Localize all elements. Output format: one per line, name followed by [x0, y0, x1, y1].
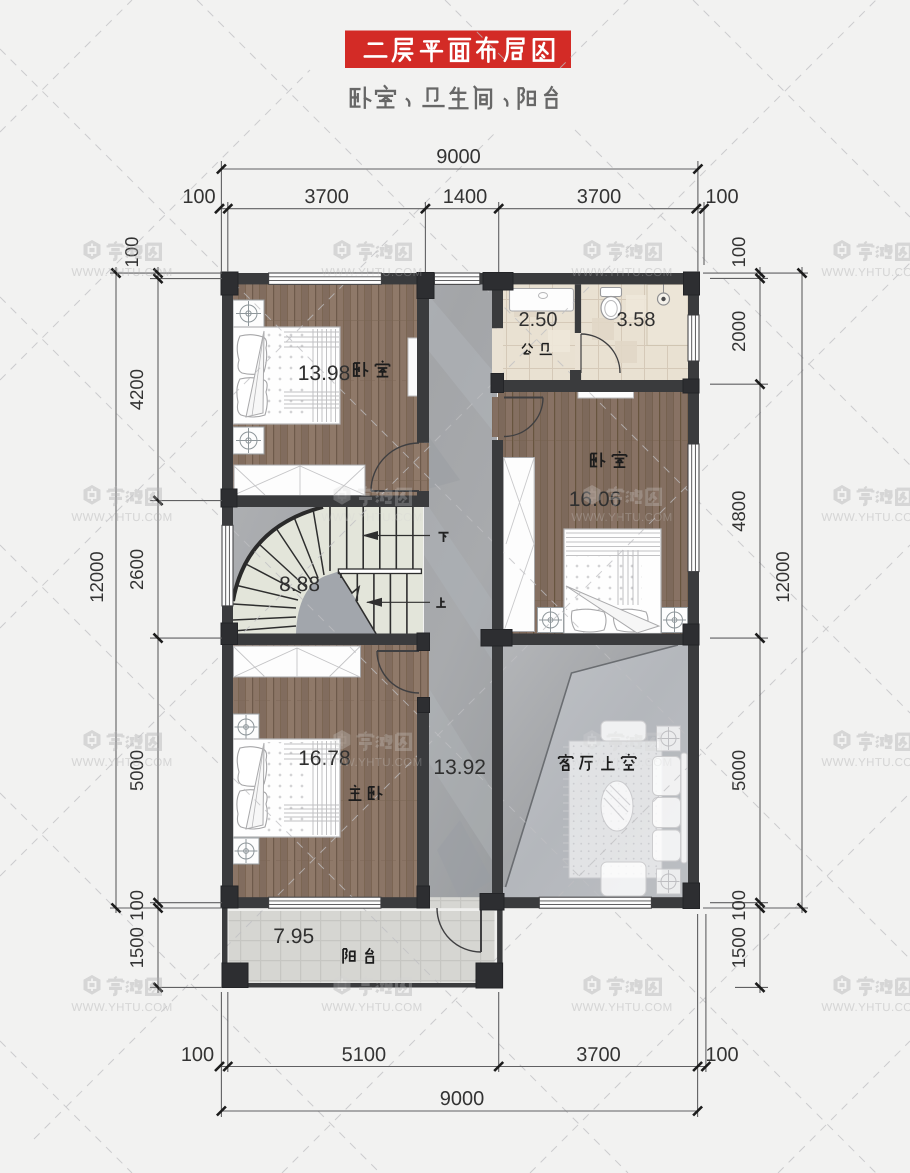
svg-text:100: 100 — [705, 1044, 738, 1066]
svg-text:100: 100 — [728, 890, 749, 921]
svg-text:100: 100 — [705, 186, 738, 208]
svg-text:12000: 12000 — [86, 551, 107, 602]
svg-text:9000: 9000 — [436, 146, 481, 168]
svg-text:2000: 2000 — [728, 311, 749, 352]
svg-text:100: 100 — [126, 890, 147, 921]
svg-text:100: 100 — [182, 186, 215, 208]
svg-text:2.50: 2.50 — [519, 309, 558, 331]
svg-text:3700: 3700 — [577, 186, 622, 208]
svg-text:3700: 3700 — [304, 186, 349, 208]
svg-text:5100: 5100 — [342, 1044, 387, 1066]
svg-text:3.58: 3.58 — [617, 309, 656, 331]
svg-text:7.95: 7.95 — [273, 925, 314, 948]
svg-text:12000: 12000 — [772, 551, 793, 602]
svg-text:13.98: 13.98 — [298, 362, 351, 385]
svg-text:2600: 2600 — [126, 549, 147, 590]
svg-text:4800: 4800 — [728, 491, 749, 532]
svg-text:1500: 1500 — [728, 927, 749, 968]
svg-text:100: 100 — [728, 237, 749, 268]
svg-text:100: 100 — [181, 1044, 214, 1066]
svg-text:13.92: 13.92 — [433, 756, 486, 779]
svg-text:8.88: 8.88 — [279, 573, 320, 596]
svg-text:4200: 4200 — [126, 369, 147, 410]
svg-text:3700: 3700 — [576, 1044, 621, 1066]
svg-text:5000: 5000 — [126, 750, 147, 791]
svg-text:1500: 1500 — [126, 927, 147, 968]
svg-text:9000: 9000 — [440, 1088, 485, 1110]
svg-text:5000: 5000 — [728, 750, 749, 791]
svg-text:1400: 1400 — [443, 186, 488, 208]
